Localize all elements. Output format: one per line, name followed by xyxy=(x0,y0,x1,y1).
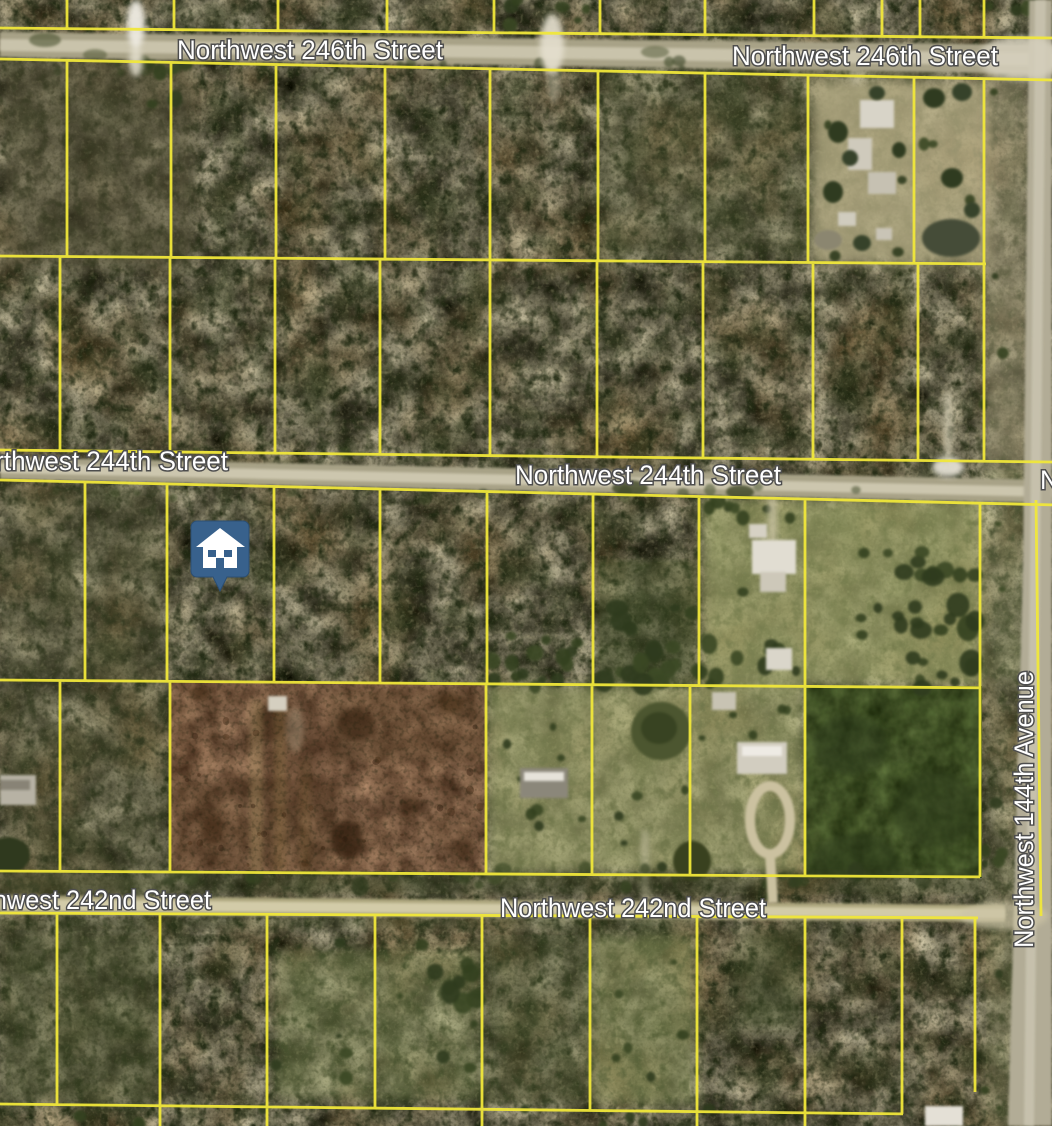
svg-text:Northwest 242nd Street: Northwest 242nd Street xyxy=(0,885,212,915)
svg-text:Northwest 244th Street: Northwest 244th Street xyxy=(0,446,229,476)
svg-text:Northwest 244th Street: Northwest 244th Street xyxy=(1040,465,1052,495)
svg-text:Northwest 244th Street: Northwest 244th Street xyxy=(515,460,782,490)
svg-text:Northwest 144th Avenue: Northwest 144th Avenue xyxy=(1009,671,1039,948)
svg-text:Northwest 242nd Street: Northwest 242nd Street xyxy=(500,893,767,923)
svg-text:Northwest 246th Street: Northwest 246th Street xyxy=(177,35,444,65)
svg-text:Northwest 246th Street: Northwest 246th Street xyxy=(732,41,999,71)
